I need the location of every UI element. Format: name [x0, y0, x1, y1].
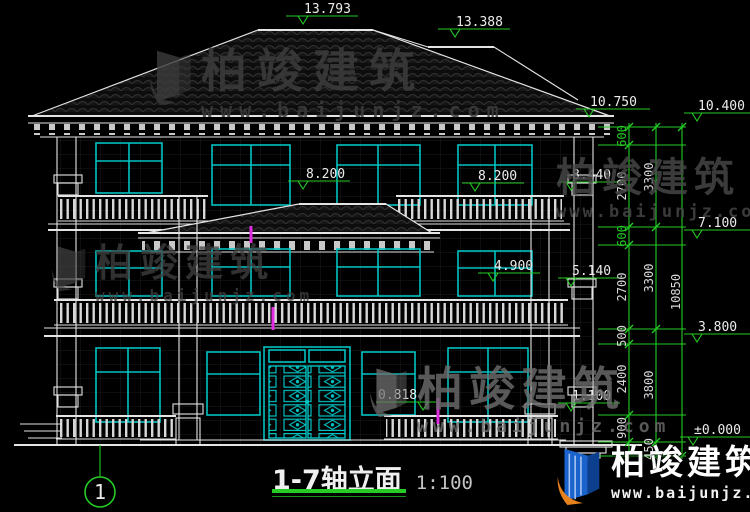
- cad-elevation-drawing: 13.793 13.388 10.750 10.400 8.440 8.200 …: [0, 0, 750, 512]
- axis-bubble: 1: [85, 445, 115, 507]
- dim-3800: 3800: [642, 371, 656, 400]
- svg-text:13.388: 13.388: [456, 15, 503, 30]
- level-ground: ±0.000: [680, 423, 750, 445]
- svg-text:5.140: 5.140: [572, 264, 611, 279]
- level-ridge-main: 13.793: [286, 2, 358, 24]
- svg-text:±0.000: ±0.000: [694, 423, 741, 438]
- title-underline-thin: [272, 496, 406, 497]
- svg-text:8.440: 8.440: [572, 168, 611, 183]
- level-f2-slab: 3.800: [684, 320, 750, 342]
- dim-2700-a: 2700: [615, 172, 629, 201]
- steps-left: [20, 424, 62, 438]
- drawing-layer: 13.793 13.388 10.750 10.400 8.440 8.200 …: [0, 0, 750, 512]
- svg-text:1.100: 1.100: [572, 389, 611, 404]
- dim-10850: 10850: [669, 274, 683, 310]
- level-eave-top: 10.750: [576, 95, 650, 117]
- svg-text:8.200: 8.200: [306, 167, 345, 182]
- level-canopy-eave: 7.100: [684, 216, 750, 238]
- dimension-chains: 600 2700 600 2700 500 2400 900 3300 3300…: [598, 123, 686, 460]
- svg-text:0.818: 0.818: [378, 388, 417, 403]
- level-eave-bottom: 10.400: [684, 99, 750, 121]
- svg-text:13.793: 13.793: [304, 2, 351, 17]
- dim-2400: 2400: [615, 365, 629, 394]
- dim-3300-a: 3300: [642, 163, 656, 192]
- level-ridge-wing: 13.388: [438, 15, 510, 37]
- svg-text:7.100: 7.100: [698, 216, 737, 231]
- main-roof: [28, 30, 614, 137]
- dim-600-top: 600: [615, 125, 629, 147]
- dim-900: 900: [615, 417, 629, 439]
- door-knob-icon: [305, 400, 309, 404]
- dim-450: 450: [642, 438, 656, 460]
- svg-text:10.750: 10.750: [590, 95, 637, 110]
- axis-number: 1: [94, 480, 106, 504]
- svg-text:8.200: 8.200: [478, 169, 517, 184]
- title-scale: 1:100: [416, 472, 473, 494]
- dim-500: 500: [615, 325, 629, 347]
- dim-600-mid: 600: [615, 225, 629, 247]
- title-underline: [272, 489, 406, 493]
- svg-text:3.800: 3.800: [698, 320, 737, 335]
- dim-2700-b: 2700: [615, 273, 629, 302]
- svg-text:10.400: 10.400: [698, 99, 745, 114]
- svg-text:4.900: 4.900: [494, 259, 533, 274]
- dim-3300-b: 3300: [642, 264, 656, 293]
